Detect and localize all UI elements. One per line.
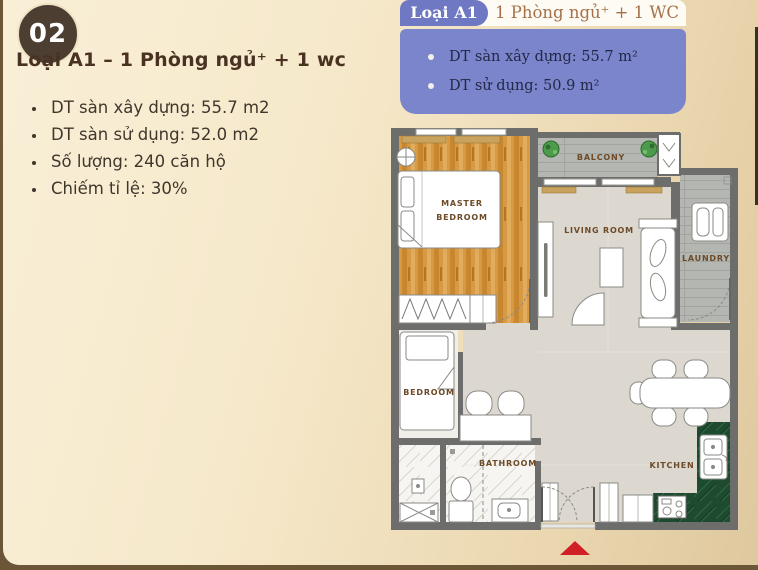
stat-built-area: DT sàn xây dựng: 55.7 m2: [47, 94, 270, 121]
stat-quantity: Số lượng: 240 căn hộ: [47, 148, 270, 175]
page: 02 Loại A1 – 1 Phòng ngủ⁺ + 1 wc DT sàn …: [0, 0, 758, 570]
unit-type-title: 1 Phòng ngủ⁺ + 1 WC: [488, 0, 686, 26]
room-label-master-1: MASTER: [441, 199, 483, 208]
toilet-icon: [451, 477, 471, 501]
room-label-bedroom: BEDROOM: [403, 388, 455, 397]
dining-chair: [652, 360, 676, 379]
room-label-kitchen: KITCHEN: [650, 461, 695, 470]
dining-table: [640, 378, 730, 408]
info-item-built-area: DT sàn xây dựng: 55.7 m²: [428, 42, 676, 71]
dining-chair: [684, 407, 708, 426]
desk-chair: [498, 391, 524, 416]
room-label-master-2: BEDROOM: [436, 213, 488, 222]
unit-type-heading: Loại A1 – 1 Phòng ngủ⁺ + 1 wc: [16, 49, 346, 71]
ac-unit-icon: [658, 134, 680, 175]
floor-plan: MASTER BEDROOM BALCONY LIVING ROOM LAUND…: [386, 127, 740, 533]
unit-type-tag: Loại A1: [400, 0, 488, 26]
stats-list: DT sàn xây dựng: 55.7 m2 DT sàn sử dụng:…: [29, 94, 270, 202]
room-label-laundry: LAUNDRY: [682, 254, 730, 263]
bedroom-furniture: [400, 332, 454, 430]
stat-ratio: Chiếm tỉ lệ: 30%: [47, 175, 270, 202]
dining-chair: [684, 360, 708, 379]
dining-chair: [652, 407, 676, 426]
room-label-bathroom: BATHROOM: [479, 459, 537, 468]
index-badge-number: 02: [29, 19, 67, 49]
info-item-text: DT sử dụng: 50.9 m²: [449, 78, 600, 94]
bullet-dot-icon: [428, 54, 434, 60]
room-label-living: LIVING ROOM: [564, 226, 634, 235]
info-item-text: DT sàn xây dựng: 55.7 m²: [449, 49, 638, 65]
stat-usable-area: DT sàn sử dụng: 52.0 m2: [47, 121, 270, 148]
info-box-body: DT sàn xây dựng: 55.7 m² DT sử dụng: 50.…: [400, 29, 686, 114]
room-label-balcony: BALCONY: [577, 153, 625, 162]
entrance-arrow-icon: [560, 541, 590, 555]
tv-icon: [544, 243, 548, 297]
plant-icon: [543, 141, 559, 157]
info-item-usable-area: DT sử dụng: 50.9 m²: [428, 71, 676, 100]
coffee-table: [600, 248, 623, 287]
bullet-dot-icon: [428, 83, 434, 89]
desk-chair: [466, 391, 492, 416]
desk: [460, 415, 531, 441]
info-box-header: Loại A1 1 Phòng ngủ⁺ + 1 WC: [400, 0, 686, 26]
content-card: 02 Loại A1 – 1 Phòng ngủ⁺ + 1 wc DT sàn …: [3, 0, 758, 565]
plant-icon: [641, 141, 657, 157]
unit-info-box: Loại A1 1 Phòng ngủ⁺ + 1 WC DT sàn xây d…: [400, 0, 686, 114]
